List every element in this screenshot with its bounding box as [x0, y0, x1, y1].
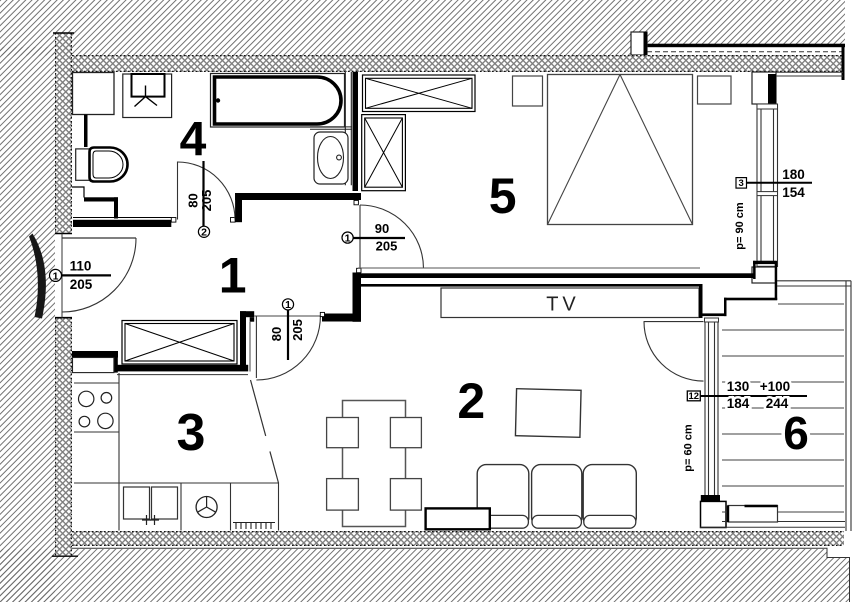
svg-text:1: 1	[345, 232, 351, 244]
svg-text:TV: TV	[546, 294, 580, 316]
svg-text:110: 110	[70, 259, 92, 274]
svg-text:180: 180	[782, 167, 805, 182]
svg-text:3: 3	[739, 178, 744, 189]
svg-text:90: 90	[375, 221, 389, 236]
svg-text:3: 3	[177, 404, 206, 462]
svg-text:5: 5	[489, 168, 517, 224]
svg-text:2: 2	[201, 227, 207, 239]
svg-text:80: 80	[269, 327, 284, 341]
svg-text:1: 1	[53, 270, 59, 282]
svg-text:2: 2	[457, 373, 485, 429]
svg-text:6: 6	[783, 407, 809, 459]
svg-text:205: 205	[70, 277, 93, 292]
svg-text:p= 90 cm: p= 90 cm	[734, 202, 746, 250]
svg-text:12: 12	[689, 391, 700, 402]
svg-text:1: 1	[219, 248, 247, 304]
svg-text:4: 4	[180, 114, 207, 167]
svg-text:205: 205	[376, 239, 398, 254]
svg-text:205: 205	[199, 190, 214, 212]
svg-text:205: 205	[290, 319, 305, 341]
svg-text:1: 1	[285, 299, 291, 311]
svg-text:184: 184	[727, 396, 750, 411]
svg-text:+100: +100	[760, 379, 790, 394]
svg-text:p= 60 cm: p= 60 cm	[682, 424, 694, 472]
svg-text:130: 130	[727, 379, 750, 394]
svg-text:154: 154	[782, 185, 805, 200]
